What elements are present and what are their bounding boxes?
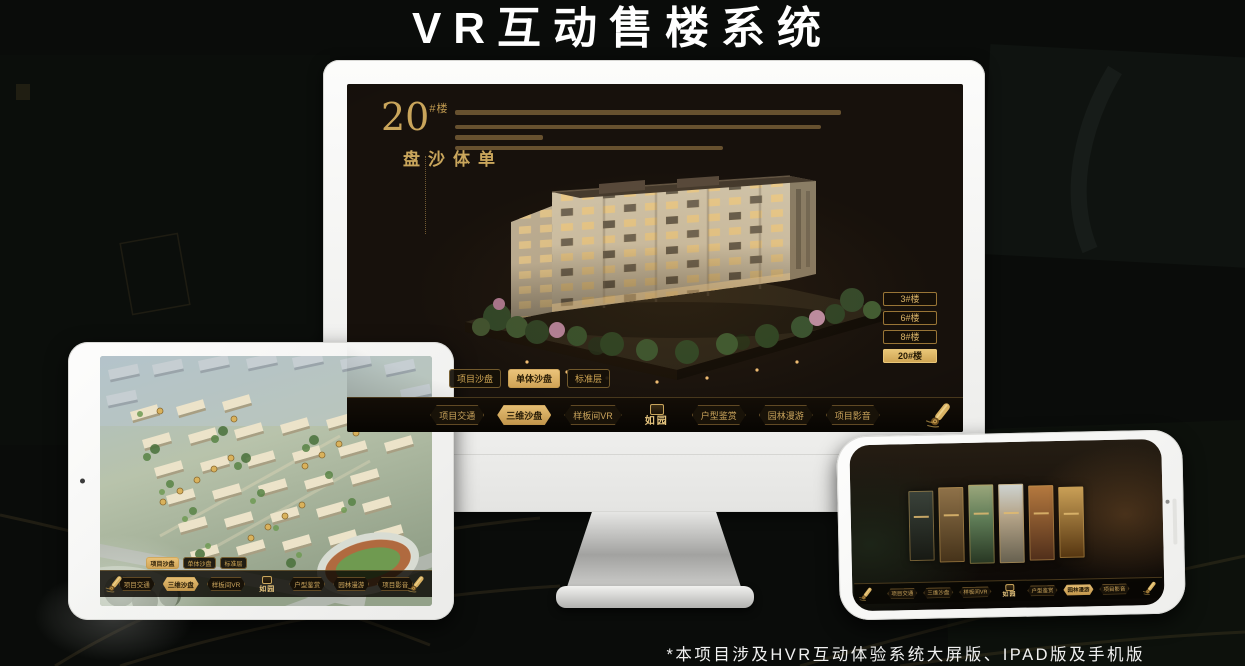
tablet-screen: 项目沙盘单体沙盘标准层 项目交通三维沙盘样板间VR如园户型鉴赏园林漫游项目影音	[100, 356, 432, 606]
subtitle-deco-line	[425, 156, 426, 234]
gallery-card[interactable]	[1058, 486, 1084, 558]
gallery-card[interactable]	[938, 487, 965, 563]
brand-emblem-icon	[650, 404, 664, 415]
view-tab[interactable]: 项目沙盘	[449, 369, 501, 388]
nav-item[interactable]: 三维沙盘	[923, 587, 953, 599]
brand-name: 如园	[259, 585, 275, 592]
page-title: VR互动售楼系统	[0, 0, 1245, 58]
nav-item[interactable]: 项目交通	[119, 577, 155, 591]
nav-item[interactable]: 园林漫游	[1063, 584, 1093, 596]
nav-item[interactable]: 样板间VR	[564, 405, 622, 425]
phone-camera	[1166, 500, 1170, 504]
view-tab[interactable]: 标准层	[567, 369, 610, 388]
gallery-card[interactable]	[968, 484, 995, 564]
building-button[interactable]: 6#楼	[883, 311, 937, 325]
brand-logo: 如园	[259, 576, 275, 592]
view-tab[interactable]: 单体沙盘	[183, 557, 216, 569]
scroll-icon[interactable]	[925, 400, 955, 430]
nav-item[interactable]: 三维沙盘	[163, 577, 199, 591]
view-tab[interactable]: 单体沙盘	[508, 369, 560, 388]
nav-item[interactable]: 园林漫游	[333, 577, 369, 591]
main-navbar: 项目交通三维沙盘样板间VR如园户型鉴赏园林漫游项目影音	[100, 570, 432, 597]
block-number: 20	[381, 95, 429, 139]
nav-item[interactable]: 三维沙盘	[497, 405, 551, 425]
monitor-stand-neck	[566, 512, 742, 590]
promo-poster: VR互动售楼系统	[0, 0, 1245, 666]
brand-logo: 如园	[1002, 584, 1016, 598]
nav-item[interactable]: 项目交通	[430, 405, 484, 425]
brand-name: 如园	[645, 417, 669, 427]
nav-item[interactable]: 项目交通	[887, 587, 917, 599]
footnote: *本项目涉及HVR互动体验系统大屏版、IPAD版及手机版	[666, 641, 1145, 665]
gallery-card[interactable]	[1028, 485, 1055, 561]
main-navbar: 项目交通三维沙盘样板间VR如园户型鉴赏园林漫游项目影音	[854, 577, 1162, 604]
view-tab-group: 项目沙盘单体沙盘标准层	[449, 369, 610, 388]
scroll-icon[interactable]	[1142, 580, 1158, 596]
view-tab[interactable]: 标准层	[220, 557, 247, 569]
nav-item[interactable]: 项目影音	[1099, 583, 1129, 595]
phone-frame: 项目交通三维沙盘样板间VR如园户型鉴赏园林漫游项目影音	[836, 429, 1186, 620]
view-tab[interactable]: 项目沙盘	[146, 557, 179, 569]
gallery-card[interactable]	[998, 484, 1025, 564]
building-button-group: 3#楼6#楼8#楼20#楼	[883, 292, 937, 363]
block-number-suffix: #楼	[429, 103, 448, 115]
building-button[interactable]: 8#楼	[883, 330, 937, 344]
monitor-stand-base	[556, 586, 754, 608]
nav-item[interactable]: 户型鉴赏	[692, 405, 746, 425]
block-headline: 20#楼 单体沙盘	[381, 98, 448, 136]
description-text-placeholder	[455, 110, 841, 150]
scroll-icon[interactable]	[407, 574, 427, 594]
monitor-screen: 20#楼 单体沙盘 3#楼6#楼8#楼20#楼 项目沙盘单体沙盘标准层 项目交通…	[347, 84, 963, 432]
nav-item[interactable]: 样板间VR	[959, 586, 991, 598]
brand-emblem-icon	[262, 576, 272, 584]
phone-screen: 项目交通三维沙盘样板间VR如园户型鉴赏园林漫游项目影音	[849, 439, 1164, 611]
gallery-card[interactable]	[908, 490, 934, 561]
gallery-strip-row	[908, 482, 1085, 565]
view-tab-group: 项目沙盘单体沙盘标准层	[146, 557, 247, 569]
nav-item[interactable]: 户型鉴赏	[1027, 585, 1057, 597]
nav-item[interactable]: 样板间VR	[207, 577, 246, 591]
tablet-camera	[80, 479, 85, 484]
main-navbar: 项目交通三维沙盘样板间VR如园户型鉴赏园林漫游项目影音	[347, 397, 963, 432]
nav-item[interactable]: 园林漫游	[759, 405, 813, 425]
brand-logo: 如园	[645, 404, 669, 427]
brand-name: 如园	[1002, 592, 1016, 598]
nav-item[interactable]: 项目影音	[826, 405, 880, 425]
block-subtitle: 单体沙盘	[397, 150, 497, 174]
tablet-frame: 项目沙盘单体沙盘标准层 项目交通三维沙盘样板间VR如园户型鉴赏园林漫游项目影音	[68, 342, 454, 620]
nav-item[interactable]: 户型鉴赏	[289, 577, 325, 591]
building-button[interactable]: 20#楼	[883, 349, 937, 363]
phone-sensor-bar	[1172, 499, 1177, 545]
building-button[interactable]: 3#楼	[883, 292, 937, 306]
scroll-icon[interactable]	[858, 586, 874, 602]
